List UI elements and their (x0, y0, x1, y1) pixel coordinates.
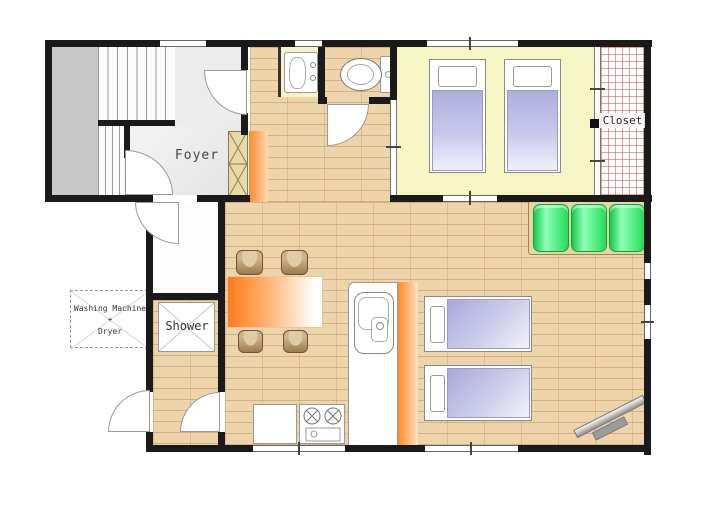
bed (424, 296, 532, 352)
wall-toilet-bottom (318, 97, 327, 104)
closet-label-text: Closet (603, 114, 643, 127)
laundry-label-line3: Dryer (98, 326, 122, 337)
wall-shower-right (218, 432, 225, 445)
window (295, 40, 322, 47)
sofa-cushion (609, 204, 645, 252)
shower-label: Shower (156, 318, 218, 334)
bed-pillow (513, 66, 552, 87)
sliding-door-tick (386, 146, 401, 148)
kitchen-island-counter-edge (398, 282, 418, 446)
sofa (528, 200, 648, 255)
kitchen-counter (253, 404, 297, 444)
wall-left-entry (45, 40, 52, 202)
stove-burners-icon (300, 405, 344, 443)
laundry-label-line2: + (108, 314, 113, 325)
bed (504, 59, 561, 173)
bed (424, 365, 532, 421)
sofa-cushion (571, 204, 607, 252)
bed-pillow (430, 375, 445, 412)
window (644, 263, 651, 279)
window (427, 40, 518, 47)
wall-right (644, 40, 651, 455)
washbasin-bowl (289, 57, 306, 89)
wall-shower-top (146, 293, 225, 300)
shoe-cabinet (228, 131, 248, 197)
wall-basin-divider (278, 47, 281, 97)
shoe-cabinet-x-icon (229, 132, 247, 196)
dining-stool (236, 250, 263, 275)
shower-label-text: Shower (165, 319, 208, 333)
bed (429, 59, 486, 173)
window-tick (298, 442, 300, 455)
closet-door-handle (590, 119, 599, 128)
window-tick (470, 442, 472, 455)
wall-top (45, 40, 652, 47)
faucet-icon (310, 62, 316, 68)
wall-toilet-left (318, 47, 325, 104)
staircase-upper (98, 47, 175, 123)
dining-stool (238, 330, 263, 353)
sofa-cushion (533, 204, 569, 252)
bed-pillow (430, 306, 445, 343)
washing-machine-box: Washing Machine + Dryer (70, 290, 148, 348)
sliding-door-tick (590, 160, 605, 162)
window-tick (641, 321, 654, 323)
wall-entry-bottom (45, 195, 148, 202)
wall-bedroom-bottom (497, 195, 652, 202)
floor-plan: Washing Machine + Dryer (0, 0, 720, 510)
stair-landing-gray (52, 47, 98, 195)
wall-shower-right (218, 202, 225, 392)
toilet-seat (347, 64, 374, 85)
entry-step-strip (249, 131, 268, 202)
staircase-lower (98, 126, 126, 195)
toilet-bowl (340, 58, 382, 91)
washbasin (284, 52, 318, 93)
kitchen-sink (354, 292, 394, 354)
wall-bottom (146, 445, 651, 452)
wall-entry-bottom (197, 195, 250, 202)
faucet-icon (376, 322, 384, 330)
window (160, 40, 206, 47)
bed-blanket (432, 90, 483, 171)
foyer-label-text: Foyer (175, 148, 219, 163)
bed-blanket (447, 299, 530, 349)
stove (299, 404, 345, 444)
wall-corridor-right (241, 47, 248, 70)
sliding-door-tick (469, 191, 471, 205)
sliding-door-tick (590, 88, 605, 90)
washing-machine-label: Washing Machine + Dryer (71, 295, 149, 345)
shower-exterior-door-arc (108, 390, 150, 432)
faucet-icon (310, 75, 316, 81)
bed-blanket (507, 90, 558, 171)
closet-label: Closet (600, 113, 645, 128)
dining-table (227, 276, 323, 328)
foyer-label: Foyer (156, 146, 238, 164)
window-tick (469, 37, 471, 50)
bedroom-floor (397, 47, 594, 195)
bed-blanket (447, 368, 530, 418)
wall-lower-left (146, 432, 153, 452)
wall-stair-mid (98, 120, 175, 126)
wall-bedroom-bottom (390, 195, 443, 202)
laundry-label-line1: Washing Machine (74, 303, 146, 314)
dining-stool (283, 330, 308, 353)
bed-pillow (438, 66, 477, 87)
wall-corridor-right (241, 113, 248, 135)
dining-stool (281, 250, 308, 275)
entry-door-arc (135, 202, 179, 244)
wall-bedroom-left (390, 40, 397, 100)
